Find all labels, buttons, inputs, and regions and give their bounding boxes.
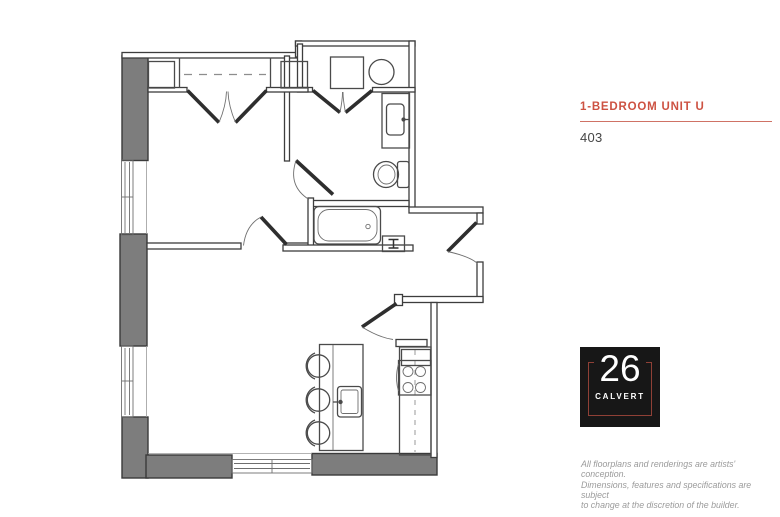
- window-bottom: [232, 460, 312, 474]
- closet-door-left: [188, 91, 220, 123]
- page-title: 1-BEDROOM UNIT U: [580, 101, 780, 113]
- bathroom-fixtures: [314, 94, 410, 252]
- floorplan-drawing: [0, 0, 520, 517]
- logo-number: 26: [580, 349, 660, 389]
- disclaimer-line: All floorplans and renderings are artist…: [581, 459, 780, 480]
- windows: [122, 160, 313, 473]
- kitchen: [306, 345, 431, 456]
- bathroom-door: [294, 161, 333, 200]
- disclaimer-text: All floorplans and renderings are artist…: [581, 459, 780, 510]
- bathtub-icon: [314, 207, 381, 245]
- bar-stool-icon: [306, 353, 330, 379]
- flyer-page: 1-BEDROOM UNIT U 403 26 CALVERT All floo…: [0, 0, 780, 517]
- window-left-lower: [122, 346, 134, 417]
- bar-stool-icon: [306, 387, 330, 413]
- closet-door-right: [236, 91, 267, 123]
- laundry-door-left: [313, 91, 340, 113]
- bar-stool-icon: [306, 420, 330, 446]
- washer-icon: [331, 57, 364, 89]
- kitchen-island: [320, 345, 364, 451]
- kitchen-door: [362, 304, 397, 340]
- title-underline: [580, 121, 772, 122]
- dryer-icon: [369, 60, 394, 85]
- building-logo: 26 CALVERT: [580, 347, 660, 427]
- toilet-icon: [374, 162, 410, 188]
- vanity-sink-icon: [382, 94, 410, 149]
- laundry-door-right: [346, 91, 373, 113]
- disclaimer-line: to change at the discretion of the build…: [581, 500, 780, 510]
- window-left-upper: [122, 160, 134, 235]
- unit-number: 403: [580, 130, 603, 145]
- refrigerator-icon: [402, 350, 431, 366]
- disclaimer-line: Dimensions, features and specifications …: [581, 480, 780, 501]
- bedroom-door: [244, 217, 287, 246]
- logo-name: CALVERT: [580, 392, 660, 401]
- entry-door: [448, 223, 478, 264]
- exterior-walls-shaded: [120, 56, 437, 479]
- island-sink-icon: [333, 387, 362, 418]
